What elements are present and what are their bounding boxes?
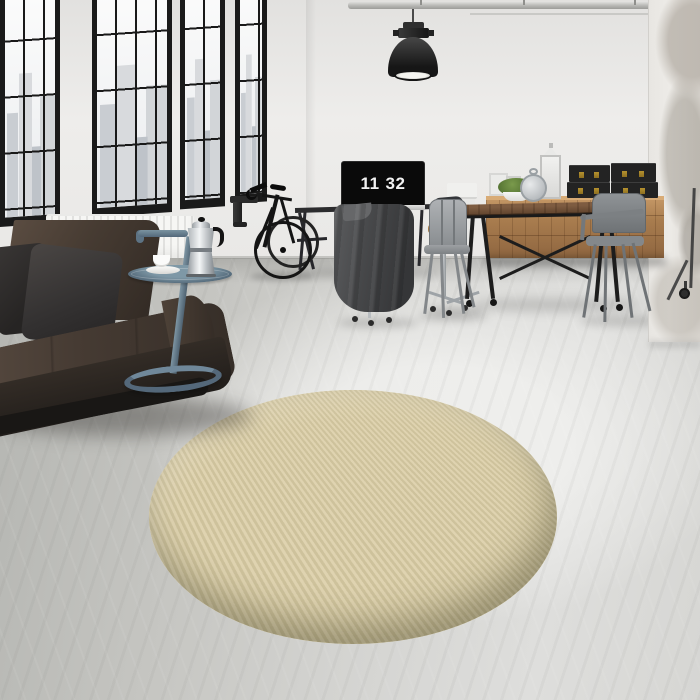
side-table-arm <box>138 230 188 237</box>
window-2 <box>92 0 172 218</box>
table-caster <box>616 304 623 311</box>
rolling-rack-caster <box>679 288 690 299</box>
window-1 <box>0 0 60 227</box>
chair-caster <box>446 310 452 316</box>
clock-minutes: 32 <box>386 174 406 194</box>
loft-interior-photo: 11 32 <box>0 0 700 700</box>
clock-hours: 11 <box>361 174 380 194</box>
moka-pot-lid <box>192 221 210 229</box>
chair-caster <box>368 320 374 326</box>
moka-pot-bottom <box>187 252 215 276</box>
pipe-bracket <box>523 0 525 5</box>
jacket-chair-shadow <box>338 318 418 328</box>
pipe-bracket <box>420 0 422 5</box>
bike-mount-foot <box>233 222 247 227</box>
lantern-knob <box>549 143 553 148</box>
chair-caster <box>430 306 436 312</box>
table-caster <box>490 299 497 306</box>
pipe-bracket <box>634 0 636 5</box>
pendant-lamp-rim <box>394 70 432 81</box>
cafe-chair-left-back <box>429 199 467 249</box>
bicycle-hub <box>280 247 286 253</box>
round-lantern <box>520 174 547 202</box>
window-3 <box>180 0 225 209</box>
moka-pot-top <box>186 228 216 248</box>
chair-caster <box>352 316 358 322</box>
moka-pot-base <box>186 274 216 277</box>
bicycle-handlebar-drop <box>246 189 257 200</box>
cafe-chair-shadow <box>418 312 488 322</box>
window-4 <box>235 0 267 204</box>
moka-pot-waist <box>190 248 212 252</box>
draped-jacket <box>334 204 414 312</box>
storage-trunk <box>611 163 656 182</box>
chair-caster <box>386 317 392 323</box>
pendant-lamp-bolt <box>393 30 399 36</box>
moka-pot-knob <box>198 217 205 222</box>
storage-trunk <box>569 165 610 182</box>
flip-clock: 11 32 <box>361 174 406 194</box>
side-table-tray <box>128 265 232 283</box>
monitor: 11 32 <box>341 161 425 207</box>
saucer <box>146 266 180 274</box>
pendant-lamp-bolt <box>428 30 434 36</box>
